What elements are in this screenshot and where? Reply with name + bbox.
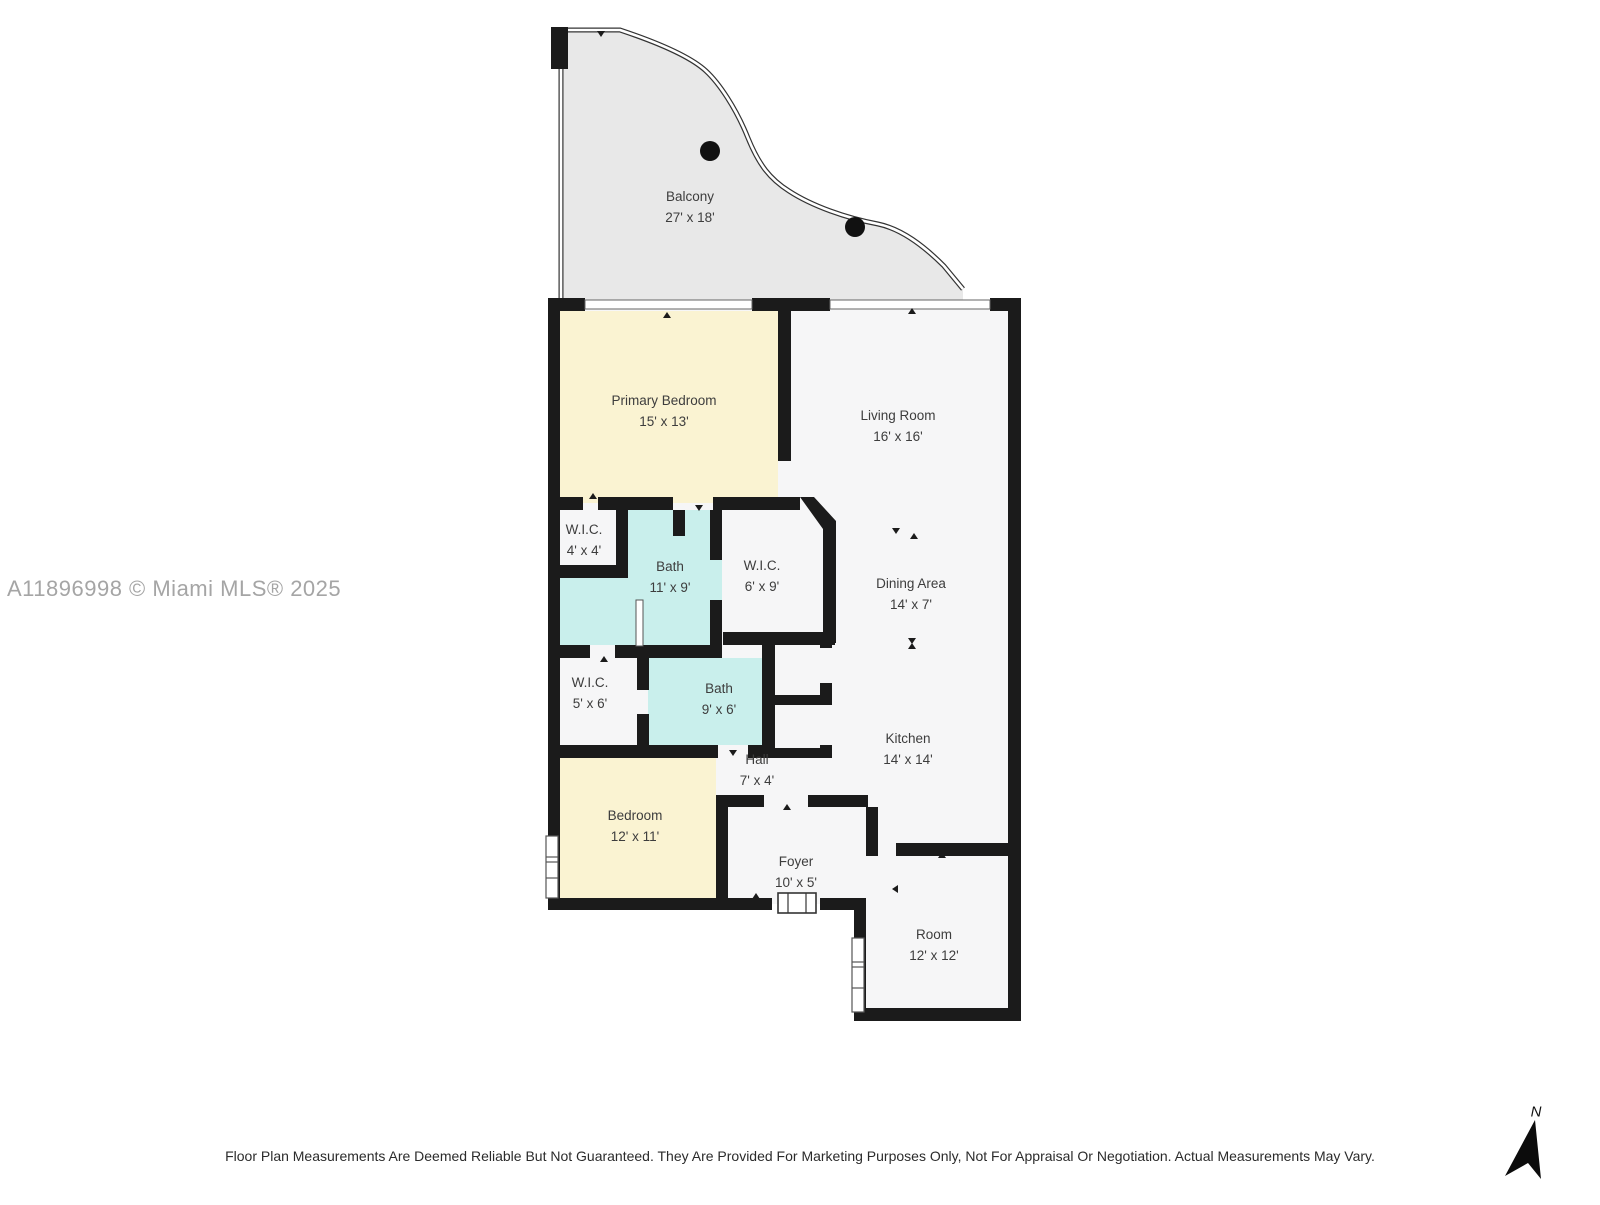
floor-plan: Balcony 27' x 18' Primary Bedroom 15' x …	[0, 0, 1600, 1200]
shower-glass	[636, 600, 643, 646]
north-label: N	[1531, 1104, 1542, 1121]
disclaimer-text: Floor Plan Measurements Are Deemed Relia…	[0, 1148, 1600, 1164]
balcony-corner-wall	[551, 27, 568, 69]
balcony-shape	[551, 27, 963, 303]
mls-watermark: A11896998 © Miami MLS® 2025	[7, 576, 341, 602]
balcony-column	[700, 141, 720, 161]
entry-door	[778, 893, 816, 913]
balcony-column	[845, 217, 865, 237]
